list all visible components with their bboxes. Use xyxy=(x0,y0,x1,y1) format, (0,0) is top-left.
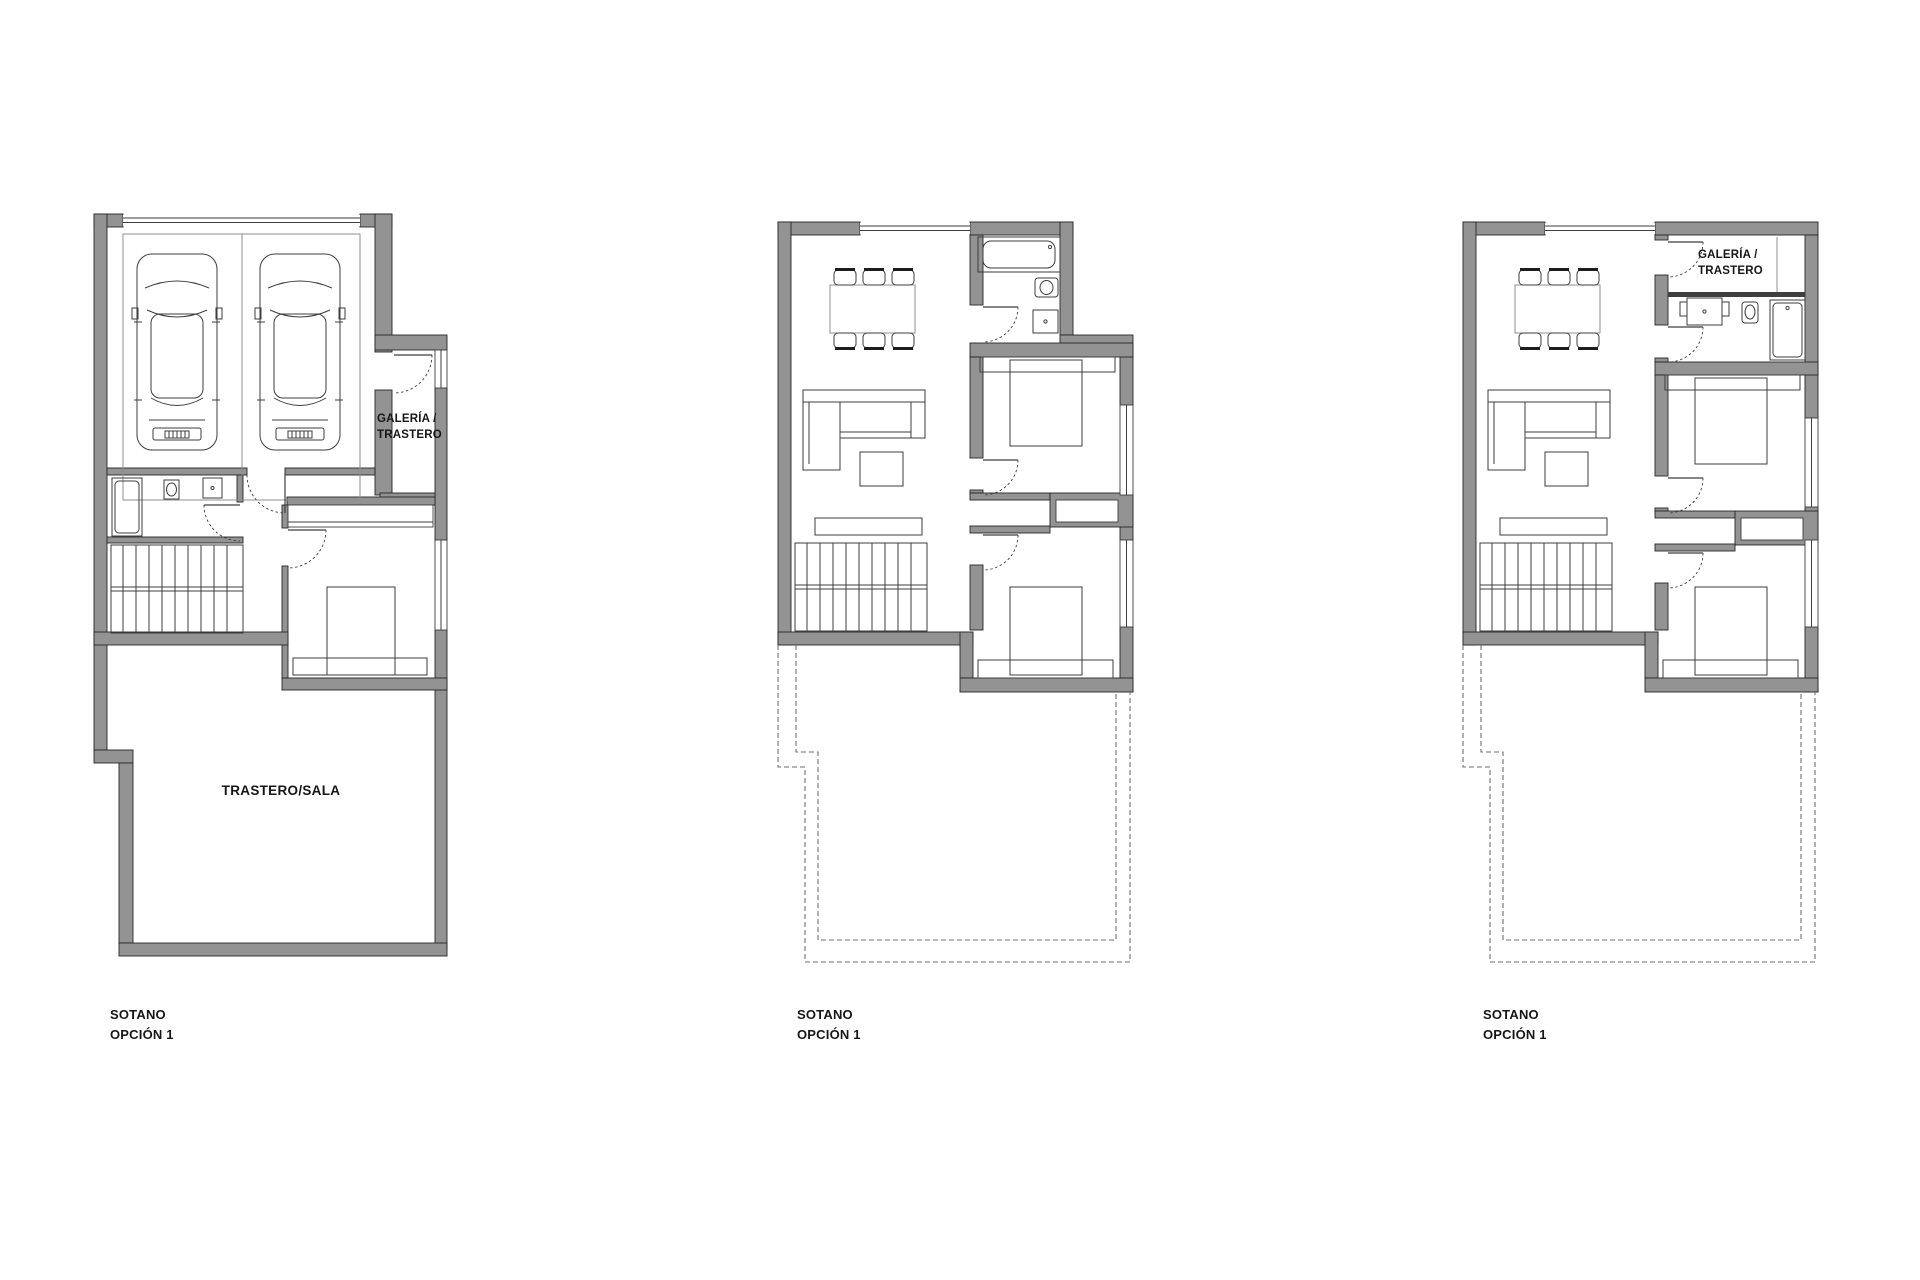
plan-caption-middle-line1: SOTANO xyxy=(797,1007,853,1022)
room-label-trastero-sala: TRASTERO/SALA xyxy=(222,783,341,798)
plan-caption-left-line2: OPCIÓN 1 xyxy=(110,1027,174,1042)
plan-middle-dining-set xyxy=(830,270,915,349)
plan-left-sotano-opcion-1: GALERÍA / TRASTERO TRASTERO/SALA xyxy=(94,214,447,956)
plan-left-garage-bays xyxy=(123,234,360,500)
room-label-galeria-line2: TRASTERO xyxy=(1698,265,1763,277)
plan-caption-right-line1: SOTANO xyxy=(1483,1007,1539,1022)
plan-caption-middle-line2: OPCIÓN 1 xyxy=(797,1027,861,1042)
plan-caption-right-line2: OPCIÓN 1 xyxy=(1483,1027,1547,1042)
stairs xyxy=(1480,543,1612,631)
plan-left-walls xyxy=(94,214,447,956)
room-label-galeria-line1: GALERÍA / xyxy=(1698,248,1758,261)
tv-cabinet xyxy=(1500,518,1607,535)
plan-middle-walls xyxy=(778,222,1133,692)
plan-left-garage-door-opening xyxy=(123,215,360,226)
plan-left-bed xyxy=(293,587,427,675)
plan-right-dining-set xyxy=(1515,270,1600,349)
stairs xyxy=(111,545,243,633)
floor-plan-sheet: GALERÍA / TRASTERO TRASTERO/SALA xyxy=(0,0,1920,1280)
plan-middle-top-opening xyxy=(860,223,970,234)
room-label-galeria-line2: TRASTERO xyxy=(377,429,442,441)
coffee-table xyxy=(860,452,903,486)
car-icon xyxy=(255,254,345,450)
plan-caption-left-line1: SOTANO xyxy=(110,1007,166,1022)
sofa xyxy=(1488,390,1610,470)
plan-right-top-opening xyxy=(1545,223,1655,234)
stairs xyxy=(795,543,927,631)
plan-captions: SOTANO OPCIÓN 1 SOTANO OPCIÓN 1 SOTANO O… xyxy=(110,1007,1547,1042)
unexcavated-outline xyxy=(778,645,1130,962)
car-icon xyxy=(132,254,222,450)
plan-middle-bathroom-fixtures xyxy=(978,237,1060,333)
tv-cabinet xyxy=(815,518,922,535)
coffee-table xyxy=(1545,452,1588,486)
plan-right-walls xyxy=(1463,222,1818,692)
unexcavated-outline xyxy=(1463,645,1815,962)
hall-closet xyxy=(1741,518,1803,540)
room-label-galeria-line1: GALERÍA / xyxy=(377,412,437,425)
floor-plan-drawing: GALERÍA / TRASTERO TRASTERO/SALA xyxy=(0,0,1920,1280)
plan-left-closet xyxy=(288,505,433,527)
hall-closet xyxy=(1056,500,1118,522)
sofa xyxy=(803,390,925,470)
plan-left-bathroom-fixtures xyxy=(112,478,222,536)
plan-right-bathroom-fixtures xyxy=(1680,298,1805,360)
plan-left-doors xyxy=(204,355,432,568)
plan-right-sotano-opcion-1: GALERÍA / TRASTERO xyxy=(1463,222,1818,962)
plan-middle-sotano-opcion-1 xyxy=(778,222,1133,962)
